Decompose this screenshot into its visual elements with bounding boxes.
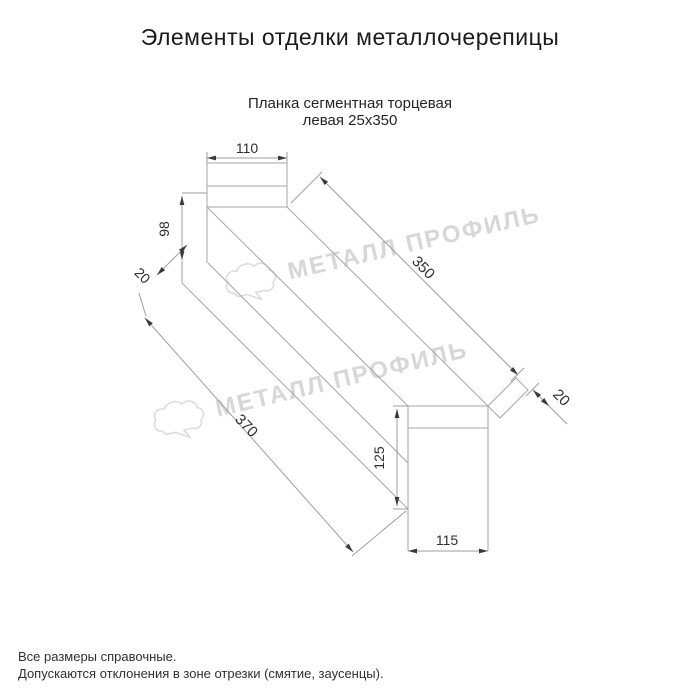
page: МЕТАЛЛ ПРОФИЛЬ МЕТАЛЛ ПРОФИЛЬ Элементы о…	[0, 0, 700, 700]
dim-110-label: 110	[236, 140, 259, 156]
part-outline	[182, 163, 528, 551]
dim-115-label: 115	[436, 532, 459, 548]
note-line-2: Допускаются отклонения в зоне отрезки (с…	[18, 665, 384, 682]
technical-drawing: 110 98 20 350 20 370	[0, 0, 700, 700]
note-line-1: Все размеры справочные.	[18, 648, 384, 665]
dim-350-label: 350	[408, 253, 438, 283]
dim-98-label: 98	[156, 221, 172, 237]
dimensions: 110 98 20 350 20 370	[131, 140, 573, 556]
dim-20-left-label: 20	[131, 264, 153, 286]
dim-20-right-label: 20	[549, 386, 573, 410]
dim-125-label: 125	[371, 446, 387, 470]
dim-370-label: 370	[231, 411, 261, 441]
footer-notes: Все размеры справочные. Допускаются откл…	[18, 648, 384, 682]
